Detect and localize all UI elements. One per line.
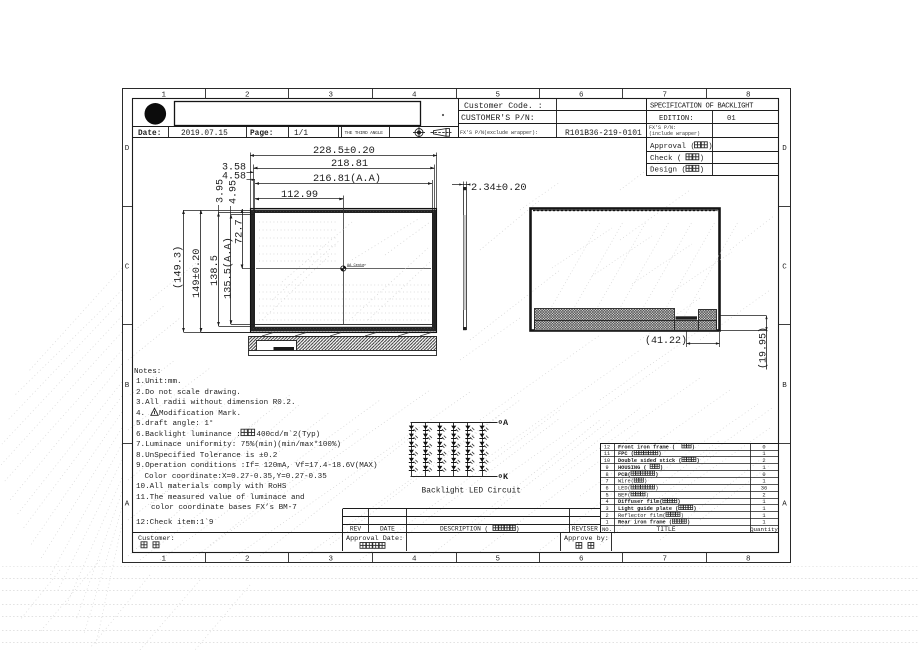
svg-text:8: 8 [605,472,608,478]
svg-text:1: 1 [161,556,166,564]
svg-text:4.: 4. [136,410,145,418]
svg-text:(149.3): (149.3) [173,246,185,289]
svg-text:(41.22): (41.22) [645,335,687,347]
svg-text:1: 1 [762,465,765,471]
svg-text:): ) [677,499,680,505]
svg-text:1: 1 [762,506,765,512]
svg-text:6.Backlight luminance :: 6.Backlight luminance : [136,431,241,439]
svg-text:10: 10 [604,458,610,464]
svg-text:): ) [644,479,647,485]
svg-text:LED(: LED( [618,485,631,491]
svg-text:): ) [681,513,684,519]
svg-text:): ) [708,143,713,151]
svg-text:FX'S P/N(exclude wrapper):: FX'S P/N(exclude wrapper): [460,130,538,136]
svg-text:3: 3 [328,556,333,564]
svg-text:1/1: 1/1 [294,130,308,138]
svg-text:D: D [125,145,130,153]
svg-text:4: 4 [412,556,417,564]
svg-text:4: 4 [605,499,608,505]
svg-text:0: 0 [762,444,765,450]
svg-text:Backlight LED Circuit: Backlight LED Circuit [422,487,521,496]
svg-text:400cd/m`2(Typ): 400cd/m`2(Typ) [256,431,320,439]
svg-text:NO.: NO. [602,526,612,533]
svg-text:Diffuser film(: Diffuser film( [618,499,663,505]
svg-text:): ) [700,155,705,163]
svg-text:): ) [700,167,705,175]
svg-text:Date:: Date: [138,130,161,138]
svg-text:): ) [646,492,649,498]
svg-text:K: K [503,472,509,482]
svg-text:): ) [658,451,661,457]
svg-text:218.81: 218.81 [331,158,368,170]
svg-text:1: 1 [762,520,765,526]
svg-text:D: D [782,145,787,153]
svg-text:C: C [782,263,787,271]
svg-text:12: 12 [604,444,610,450]
svg-text:EDITION:: EDITION: [659,115,694,123]
svg-text:Light guide plate (: Light guide plate ( [618,506,678,512]
svg-text:Design (: Design ( [650,167,686,175]
svg-text:3: 3 [328,92,333,100]
svg-text:6: 6 [579,556,584,564]
svg-text:216.81(A.A): 216.81(A.A) [313,173,381,185]
svg-text:7: 7 [662,92,667,100]
svg-text:color coordinate bases FX’s BM: color coordinate bases FX’s BM-7 [151,504,297,512]
svg-text:72.7: 72.7 [234,219,246,244]
svg-text:228.5±0.20: 228.5±0.20 [313,145,375,157]
svg-text:AA Center: AA Center [347,263,366,268]
svg-text:12:Check item:1`9: 12:Check item:1`9 [136,519,214,527]
svg-text:(include wrapper): (include wrapper) [649,131,700,137]
svg-text:DATE: DATE [380,525,395,532]
svg-text:8.UnSpecified Tolerance is ±0.: 8.UnSpecified Tolerance is ±0.2 [136,452,278,460]
svg-text:Double sided stick (: Double sided stick ( [618,458,682,464]
svg-text:2: 2 [762,458,765,464]
svg-text:5: 5 [495,92,500,100]
svg-text:): ) [697,458,700,464]
svg-text:8: 8 [746,556,751,564]
svg-text:149±0.20: 149±0.20 [191,249,203,298]
svg-text:0: 0 [762,472,765,478]
svg-text:B: B [782,382,787,390]
svg-text:): ) [655,485,658,491]
svg-text:Color coordinate:X=0.27-0.35,Y: Color coordinate:X=0.27-0.35,Y=0.27-0.35 [145,473,328,481]
svg-text:3: 3 [605,506,608,512]
svg-text:C: C [125,263,130,271]
svg-text:Notes:: Notes: [134,368,161,376]
svg-text:112.99: 112.99 [281,189,318,201]
svg-text:11.The measured value of lumin: 11.The measured value of luminace and [136,494,305,502]
svg-text:PCB(: PCB( [618,472,631,478]
svg-text:1: 1 [762,499,765,505]
svg-text:2.34±0.20: 2.34±0.20 [471,182,527,194]
svg-text:4.95: 4.95 [229,180,240,204]
svg-text:Quantity: Quantity [750,526,778,533]
svg-text:): ) [660,465,663,471]
svg-text:2: 2 [245,92,250,100]
svg-text:1: 1 [762,479,765,485]
svg-text:CUSTOMER'S P/N:: CUSTOMER'S P/N: [461,113,535,123]
svg-text:6: 6 [605,485,608,491]
svg-text:): ) [693,506,696,512]
svg-text:135.5(A.A): 135.5(A.A) [223,237,235,299]
svg-text:A: A [503,418,509,428]
svg-text:138.5: 138.5 [209,255,221,286]
svg-text:REV: REV [350,525,361,532]
svg-text:): ) [687,520,690,526]
svg-text:R101B36-219-0101: R101B36-219-0101 [565,129,642,138]
svg-text:2: 2 [605,513,608,519]
svg-text:Customer Code. :: Customer Code. : [464,101,543,111]
svg-text:7: 7 [605,479,608,485]
svg-text:9: 9 [605,465,608,471]
svg-text:2019.07.15: 2019.07.15 [181,130,228,138]
svg-text:5: 5 [605,492,608,498]
svg-text:7: 7 [662,556,667,564]
svg-text:5.draft angle: 1°: 5.draft angle: 1° [136,419,213,428]
svg-text:(19.95): (19.95) [758,327,770,369]
svg-text:1: 1 [762,451,765,457]
svg-text:Approval (: Approval ( [650,143,695,151]
svg-text:SPECIFICATION OF BACKLIGHT: SPECIFICATION OF BACKLIGHT [650,103,754,111]
svg-text:36: 36 [761,485,767,491]
svg-text:2: 2 [762,492,765,498]
svg-text:3.All radii without dimension: 3.All radii without dimension R0.2. [136,399,296,407]
svg-text:BEF(: BEF( [618,492,631,498]
svg-text:Wire(: Wire( [618,479,634,485]
svg-text:B: B [125,382,130,390]
svg-text:4: 4 [412,92,417,100]
svg-text:5: 5 [495,556,500,564]
svg-text:01: 01 [727,115,736,123]
svg-text:2: 2 [245,556,250,564]
svg-text:REVISER: REVISER [572,525,598,532]
svg-text:): ) [692,444,695,450]
svg-text:3.95: 3.95 [216,179,227,203]
svg-text:A: A [125,500,130,508]
svg-text:1: 1 [605,520,608,526]
svg-text:Check (: Check ( [650,155,682,163]
svg-text:Rear iron frame (: Rear iron frame ( [618,520,672,526]
svg-text:TITLE: TITLE [656,526,675,533]
svg-text:A: A [782,500,787,508]
svg-text:Page:: Page: [250,130,273,138]
svg-text:THE THIRD ANGLE: THE THIRD ANGLE [345,130,384,136]
svg-text:1: 1 [161,92,166,100]
svg-text:11: 11 [604,451,610,457]
svg-text:Modification Mark.: Modification Mark. [159,410,241,418]
svg-text:2.Do not scale drawing.: 2.Do not scale drawing. [136,389,241,397]
svg-text:7.Luminace uniformity: 75%(min: 7.Luminace uniformity: 75%(min)(min/max*… [136,441,341,449]
svg-text:1: 1 [762,513,765,519]
svg-text:Reflector film(: Reflector film( [618,513,666,519]
svg-text:): ) [516,525,520,532]
svg-text:1.Unit:mm.: 1.Unit:mm. [136,378,182,386]
svg-text:8: 8 [746,92,751,100]
svg-text:HOUSING (: HOUSING ( [618,465,647,471]
svg-text:6: 6 [579,92,584,100]
svg-text:DESCRIPTION (: DESCRIPTION ( [440,525,488,532]
svg-text:Front iron frame (: Front iron frame ( [618,444,675,450]
svg-text:10.All materials comply with R: 10.All materials comply with RoHS [136,483,287,491]
svg-text:9.Operation conditions :If= 12: 9.Operation conditions :If= 120mA, Vf=17… [136,462,378,470]
svg-text:FPC (: FPC ( [618,451,634,457]
svg-text:Approve by:: Approve by: [564,535,609,543]
svg-text:Approval Date:: Approval Date: [346,535,403,543]
svg-text:): ) [655,472,658,478]
